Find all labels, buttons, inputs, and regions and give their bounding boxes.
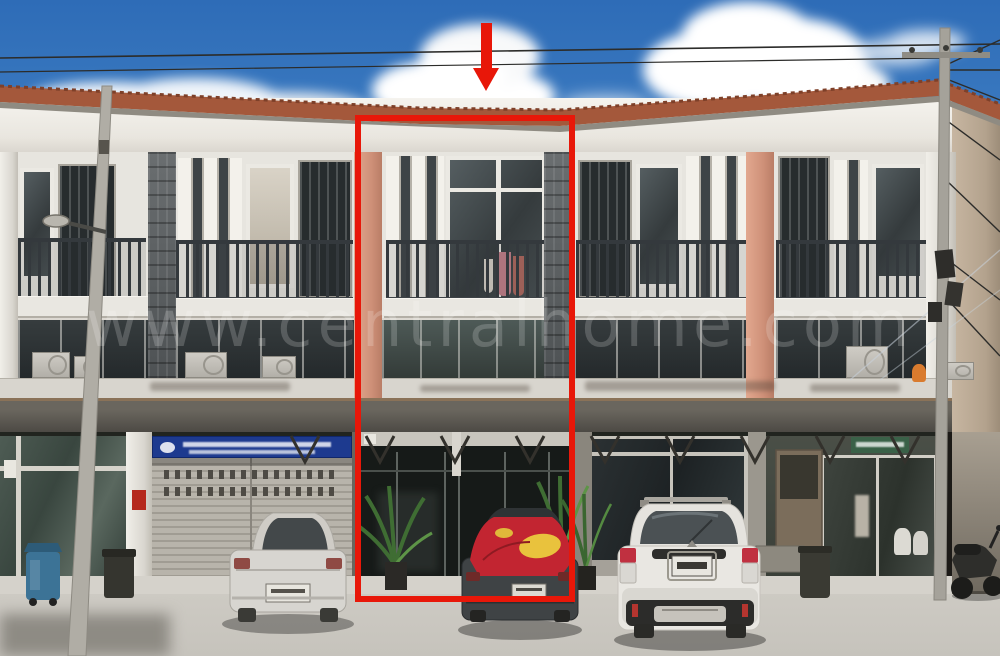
red-down-arrow-head [473,68,499,91]
white-suv [614,497,766,651]
red-down-arrow [481,23,492,70]
silver-sedan [222,513,354,634]
trash-bin-dark [798,546,832,598]
blue-wheelie-bin [24,543,62,606]
motorcycle [951,525,1000,601]
listing-photo: www.centralhome.com [0,0,1000,656]
highlight-box [355,115,575,602]
black-bin [102,549,136,598]
